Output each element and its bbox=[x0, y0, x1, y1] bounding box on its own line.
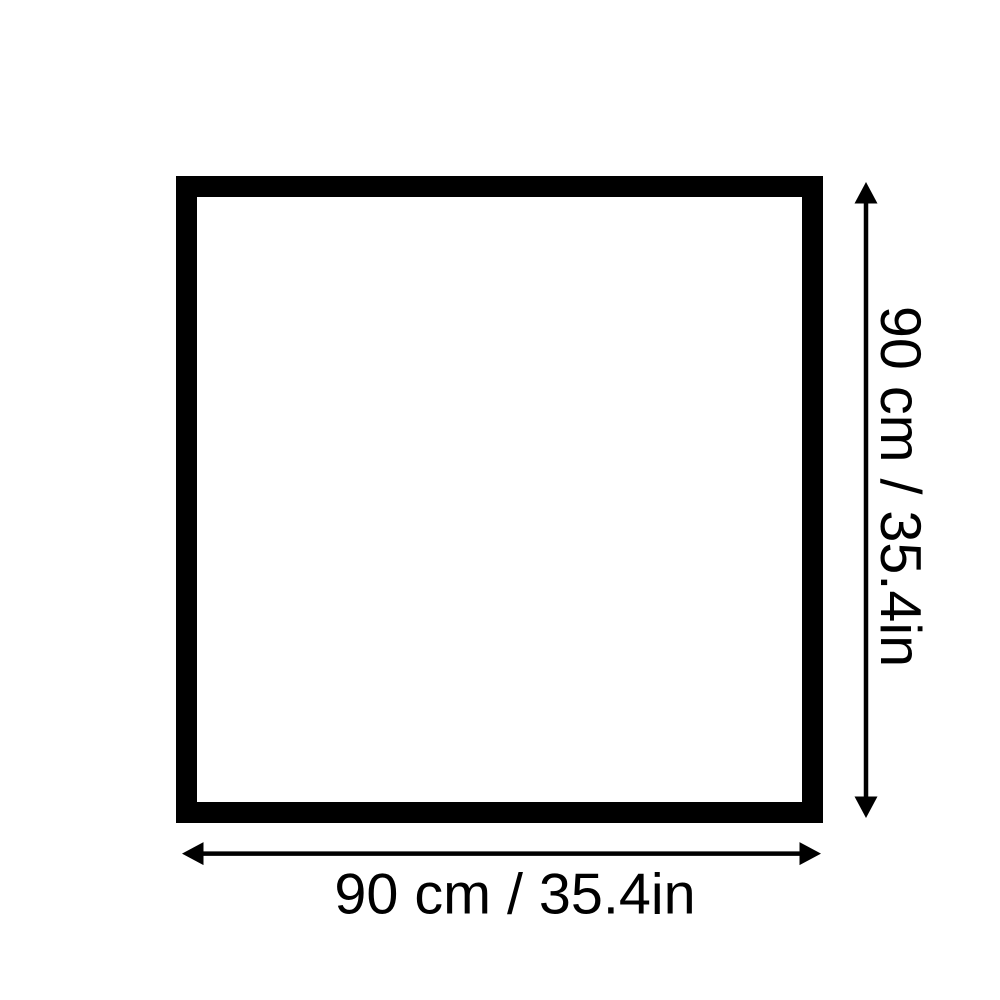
svg-text:90 cm / 35.4in: 90 cm / 35.4in bbox=[868, 306, 932, 667]
svg-text:90 cm / 35.4in: 90 cm / 35.4in bbox=[334, 863, 695, 927]
